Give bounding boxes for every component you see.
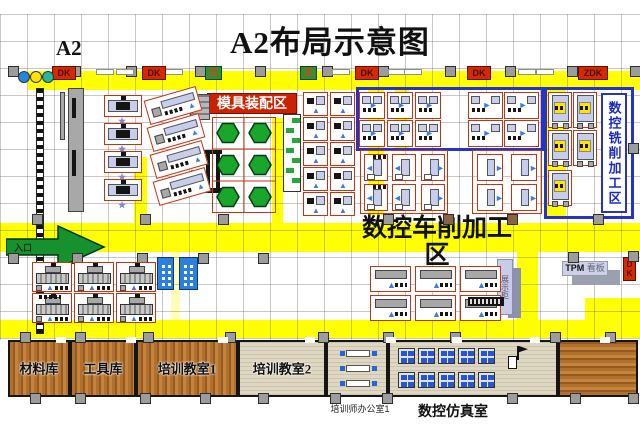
machine-milling-station: ► xyxy=(387,120,413,147)
machine-lathe: ▲ xyxy=(32,293,72,323)
machine-group-left: ◄◄◄◄►► xyxy=(360,150,448,214)
office-chair xyxy=(372,381,377,386)
dk-marker: DK xyxy=(355,66,379,80)
machine-lathe: ▲ xyxy=(116,262,156,292)
milling-zone-label-box: 数控铣削加工区 xyxy=(601,93,627,213)
column-marker xyxy=(75,332,86,343)
door-opening xyxy=(126,337,136,343)
office-chair xyxy=(372,351,377,356)
dk-marker: DK xyxy=(467,66,491,80)
tool-cabinet xyxy=(157,257,174,290)
machine-milling xyxy=(548,92,572,128)
machine-milling-station: ► xyxy=(415,92,441,119)
zone-label: A2 xyxy=(56,36,82,61)
door-opening xyxy=(600,337,610,343)
signal-light xyxy=(30,71,42,83)
column-marker xyxy=(593,214,604,225)
computer-cluster xyxy=(478,348,495,364)
machine-station: ► xyxy=(421,184,445,211)
machine-station: ► xyxy=(511,184,537,211)
machine-station: ▲ xyxy=(303,192,328,216)
computer-cluster xyxy=(398,372,415,388)
column-marker xyxy=(570,393,581,404)
computer-cluster xyxy=(458,348,475,364)
door-opening xyxy=(56,337,66,343)
machine-milling-station: ► xyxy=(504,92,539,119)
milling-zone-label: 数控铣削加工区 xyxy=(605,101,624,206)
machine-station: ▲ xyxy=(330,117,355,141)
storage-rack xyxy=(68,88,84,212)
tpm-board-suffix: 看板 xyxy=(587,263,605,273)
podium xyxy=(508,356,517,369)
column-marker xyxy=(630,66,640,77)
office-chair xyxy=(340,381,345,386)
column-marker xyxy=(75,393,86,404)
machine-station: ► xyxy=(477,154,503,181)
machine-milling-station: ► xyxy=(415,120,441,147)
floor-marker xyxy=(165,69,183,75)
fire-extinguisher-marker: 灭 xyxy=(300,66,317,80)
machine-station: ▲ xyxy=(460,266,501,292)
storage-rack-mark xyxy=(72,150,76,176)
machine-station: ▲ xyxy=(370,266,411,292)
machine-station: ◄ xyxy=(364,154,388,181)
column-marker xyxy=(140,393,151,404)
ladder-rung xyxy=(286,168,294,173)
machine-station: ▲ xyxy=(303,92,328,116)
floor-marker xyxy=(332,69,350,75)
zdk-marker: ZDK xyxy=(578,66,608,80)
dk-marker: DK xyxy=(142,66,166,80)
room-tool: 工具库 xyxy=(70,340,136,397)
ladder-rung xyxy=(286,128,294,133)
tpm-board: TPM 看板 xyxy=(562,261,608,276)
signal-light xyxy=(42,71,54,83)
machine-label xyxy=(468,297,504,306)
column-marker xyxy=(382,393,393,404)
column-marker xyxy=(200,393,211,404)
machine-station: ▲ xyxy=(330,142,355,166)
column-marker xyxy=(30,393,41,404)
door-opening xyxy=(305,337,315,343)
machine-station: ▲ xyxy=(303,167,328,191)
column-marker xyxy=(628,393,639,404)
column-marker xyxy=(255,66,266,77)
column-marker xyxy=(628,251,639,262)
column-marker xyxy=(330,393,341,404)
column-marker xyxy=(258,253,269,264)
machine-milling-station: ► xyxy=(387,92,413,119)
room-simulation xyxy=(388,340,558,397)
floor-marker xyxy=(536,69,554,75)
ladder-rung xyxy=(292,178,300,183)
column-marker xyxy=(258,393,269,404)
podium-flag xyxy=(519,346,528,355)
machine-group-right: ►►►► xyxy=(472,150,542,214)
column-marker xyxy=(318,332,329,343)
machine-milling xyxy=(573,92,597,128)
computer-cluster xyxy=(418,372,435,388)
room-classroom1: 培训教室1 xyxy=(136,340,238,397)
room-classroom1-label: 培训教室1 xyxy=(138,358,236,377)
machine-milling-station: ► xyxy=(504,120,539,147)
machine-station: ► xyxy=(421,154,445,181)
machine-press xyxy=(104,123,142,145)
dk-marker-rotated-text: DK xyxy=(625,260,634,278)
dk-marker: DK xyxy=(52,66,76,80)
machine-station: ◄ xyxy=(364,184,388,211)
machine-lathe: ▲ xyxy=(32,262,72,292)
machine-station: ▲ xyxy=(330,167,355,191)
column-marker xyxy=(568,252,579,263)
column-marker xyxy=(507,214,518,225)
storage-rack-thin xyxy=(60,92,65,140)
podium-flag-pole xyxy=(517,346,519,360)
machine-station: ▲ xyxy=(370,295,411,321)
machine-station: ▲ xyxy=(330,92,355,116)
fire-extinguisher-marker: 灭 xyxy=(205,66,222,80)
room-tool-label: 工具库 xyxy=(72,358,134,377)
office-desk xyxy=(346,380,370,387)
tpm-board-prefix: TPM xyxy=(565,263,584,273)
ladder-rung xyxy=(292,138,300,143)
room-unlabeled xyxy=(558,340,638,397)
machine-milling-station: ► xyxy=(359,92,385,119)
machine-lathe: ▲ xyxy=(74,293,114,323)
machine-lathe: ▲ xyxy=(74,262,114,292)
marker-star: ★ xyxy=(118,201,130,211)
machine-milling xyxy=(573,130,597,166)
room-classroom2: 培训教室2 xyxy=(238,340,326,397)
room-material: 材料库 xyxy=(8,340,70,397)
column-marker xyxy=(8,253,19,264)
page-title: A2布局示意图 xyxy=(170,17,490,62)
machine-milling-station: ► xyxy=(359,120,385,147)
column-marker xyxy=(218,214,229,225)
ladder-rung xyxy=(292,158,300,163)
column-marker xyxy=(550,332,561,343)
door-opening xyxy=(386,337,396,343)
mold-assembly-banner: 模具装配区 xyxy=(207,93,297,114)
office-chair xyxy=(340,366,345,371)
office-chair xyxy=(372,366,377,371)
machine-station: ◄ xyxy=(392,184,416,211)
computer-cluster xyxy=(418,348,435,364)
door-opening xyxy=(218,337,228,343)
room-teacher-office xyxy=(326,340,388,397)
machine-station: ► xyxy=(511,154,537,181)
room-material-label: 材料库 xyxy=(10,358,68,377)
column-marker xyxy=(507,393,518,404)
tool-cabinet xyxy=(179,257,198,290)
machine-milling xyxy=(548,170,572,206)
machine-press xyxy=(104,151,142,173)
machine-station: ▲ xyxy=(330,192,355,216)
room-classroom2-label: 培训教室2 xyxy=(240,358,324,377)
column-marker xyxy=(383,214,394,225)
column-marker xyxy=(567,66,578,77)
machine-lathe: ▲ xyxy=(116,293,156,323)
column-marker xyxy=(628,143,639,154)
machine-milling xyxy=(548,130,572,166)
corridor-patch-bottom-right xyxy=(585,298,640,320)
machine-press xyxy=(104,179,142,201)
column-marker xyxy=(20,332,31,343)
machine-station: ▲ xyxy=(303,117,328,141)
machine-milling-station: ► xyxy=(468,120,503,147)
simulation-room-label: 数控仿真室 xyxy=(398,401,508,421)
office-chair xyxy=(340,351,345,356)
floor-plan-canvas: A2布局示意图 A2 模具装配区 数控铣削加工区 xyxy=(0,0,640,443)
machine-press xyxy=(104,95,142,117)
machine-station: ▲ xyxy=(303,142,328,166)
computer-cluster xyxy=(438,372,455,388)
storage-rack-mark xyxy=(72,98,76,118)
door-opening xyxy=(452,337,462,343)
ladder-rung xyxy=(292,118,300,123)
column-marker xyxy=(445,66,456,77)
machine-station: ▲ xyxy=(415,266,456,292)
floor-marker xyxy=(96,69,114,75)
column-marker xyxy=(143,332,154,343)
floor-marker xyxy=(404,69,422,75)
office-desk xyxy=(346,350,370,357)
computer-cluster xyxy=(478,372,495,388)
ladder-rack xyxy=(283,114,301,192)
floor-marker xyxy=(518,69,536,75)
machine-milling-station: ► xyxy=(468,92,503,119)
office-desk xyxy=(346,365,370,372)
machine-station: ▲ xyxy=(415,295,456,321)
hexagon-mold-rack xyxy=(212,117,276,213)
machine-group-bottom: ▲▲▲▲▲▲ xyxy=(370,266,510,324)
computer-cluster xyxy=(458,372,475,388)
column-marker xyxy=(505,66,516,77)
ladder-rung xyxy=(286,148,294,153)
column-marker xyxy=(198,253,209,264)
computer-cluster xyxy=(438,348,455,364)
door-opening xyxy=(530,337,540,343)
computer-cluster xyxy=(398,348,415,364)
column-marker xyxy=(32,214,43,225)
column-marker xyxy=(140,214,151,225)
machine-station: ◄ xyxy=(392,154,416,181)
signal-light xyxy=(18,71,30,83)
floor-marker xyxy=(116,69,134,75)
machine-station: ► xyxy=(477,184,503,211)
column-marker xyxy=(443,214,454,225)
